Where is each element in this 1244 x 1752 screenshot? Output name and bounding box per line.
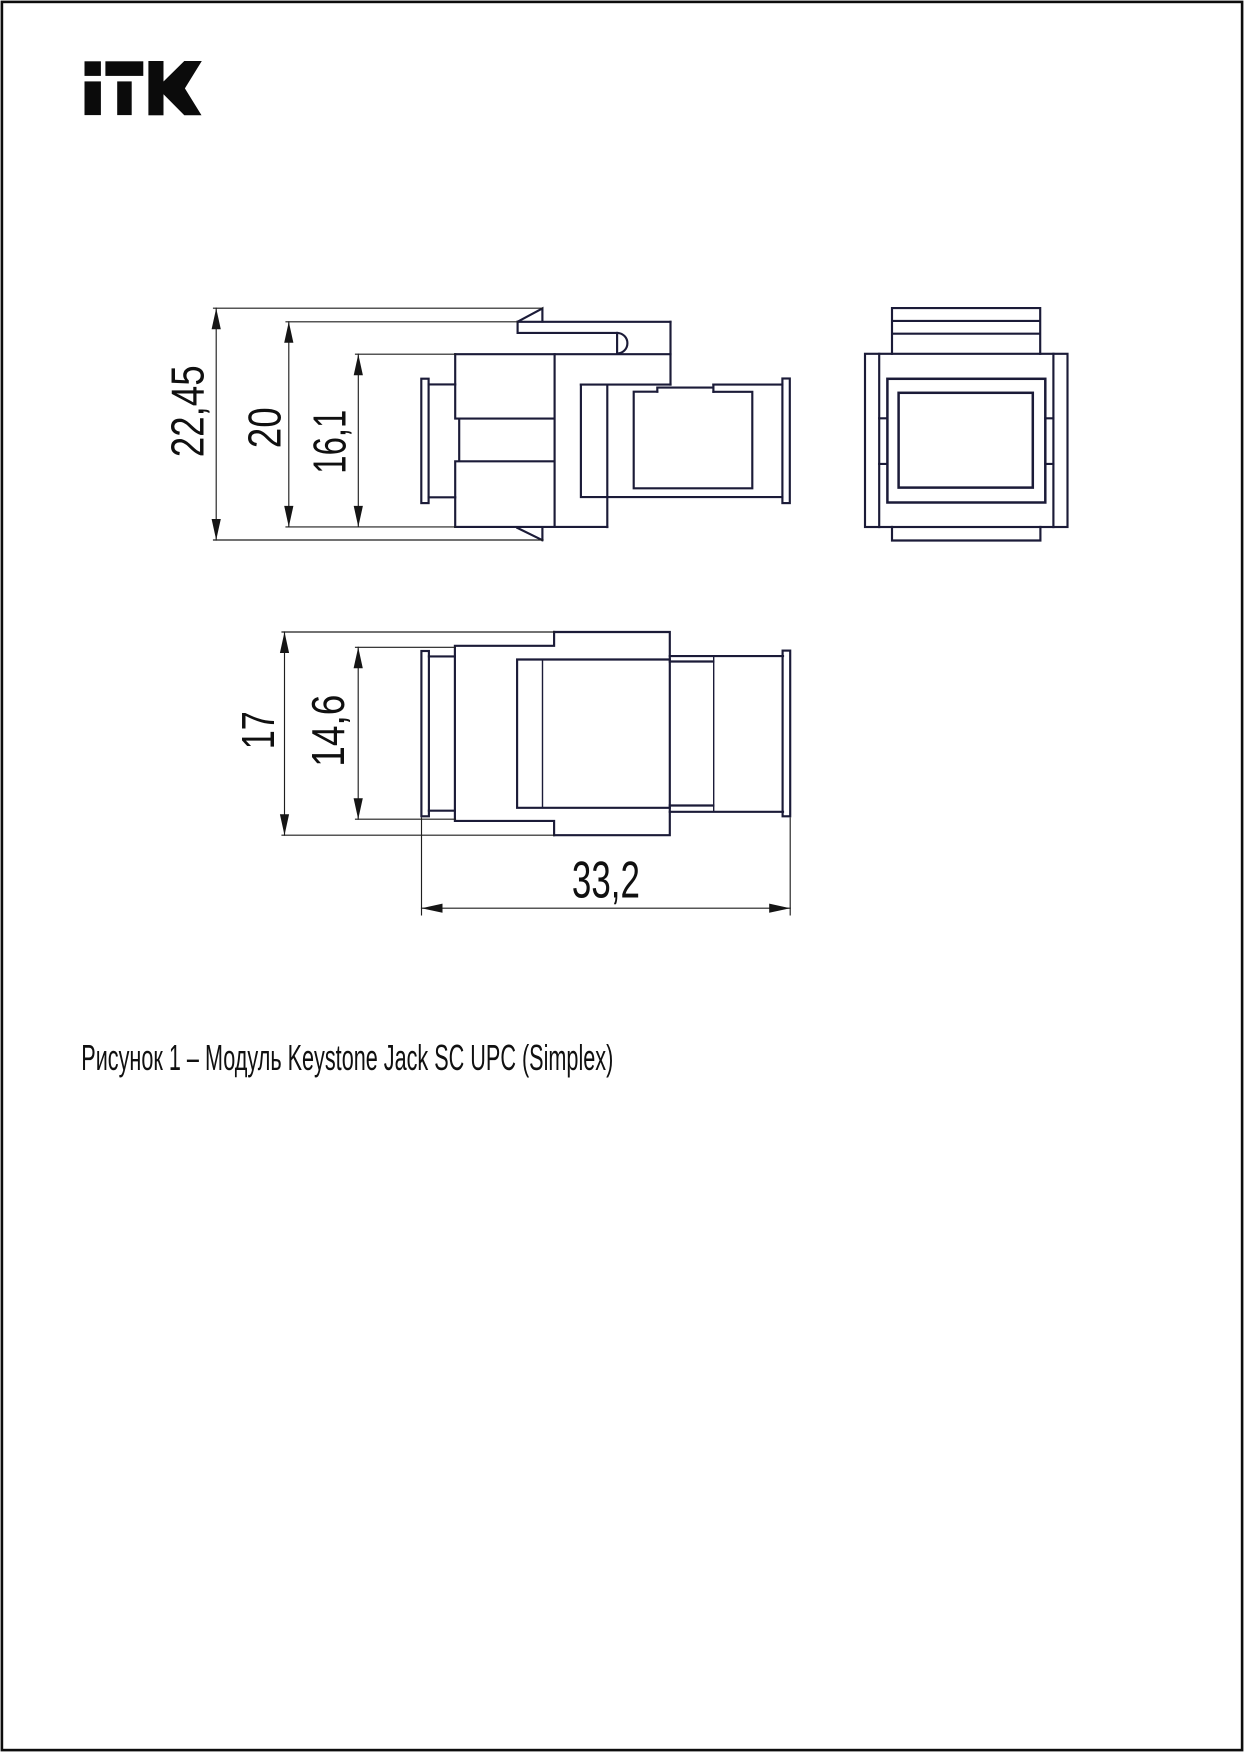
svg-text:33,2: 33,2 bbox=[572, 852, 640, 910]
svg-text:20: 20 bbox=[239, 407, 291, 448]
svg-text:22,45: 22,45 bbox=[162, 365, 214, 457]
svg-text:Рисунок 1 – Модуль Keystone Ja: Рисунок 1 – Модуль Keystone Jack SC UPC … bbox=[81, 1037, 613, 1078]
svg-text:17: 17 bbox=[232, 711, 284, 749]
svg-text:16,1: 16,1 bbox=[304, 410, 356, 474]
svg-text:14,6: 14,6 bbox=[302, 695, 354, 767]
